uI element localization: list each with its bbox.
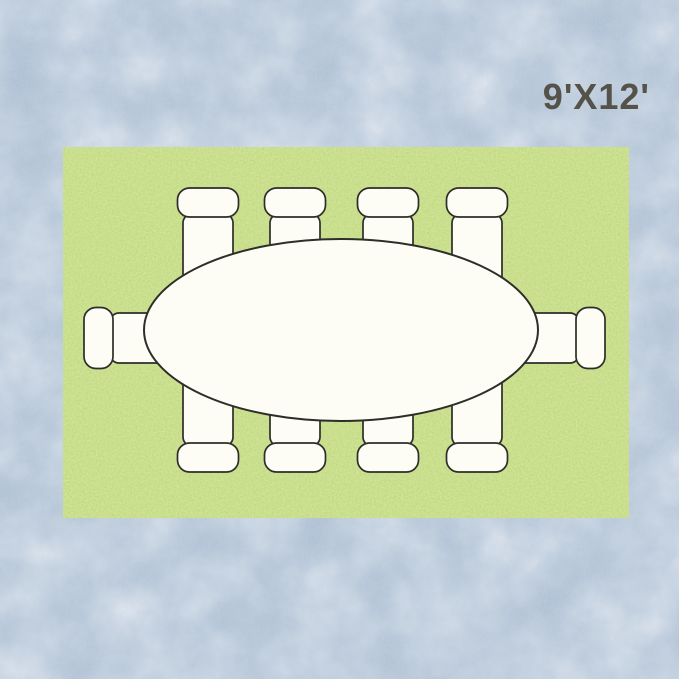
chair-back	[84, 308, 113, 369]
chair-back	[265, 188, 326, 217]
chair-back	[447, 443, 508, 472]
chair-back	[178, 443, 239, 472]
rug-size-diagram: 9'X12'	[0, 0, 679, 679]
chair-back	[178, 188, 239, 217]
rug-size-label: 9'X12'	[543, 79, 650, 115]
dining-table	[144, 239, 538, 421]
chair-back	[447, 188, 508, 217]
chair-back	[358, 443, 419, 472]
chair-back	[576, 308, 605, 369]
chair-back	[358, 188, 419, 217]
chair-back	[265, 443, 326, 472]
